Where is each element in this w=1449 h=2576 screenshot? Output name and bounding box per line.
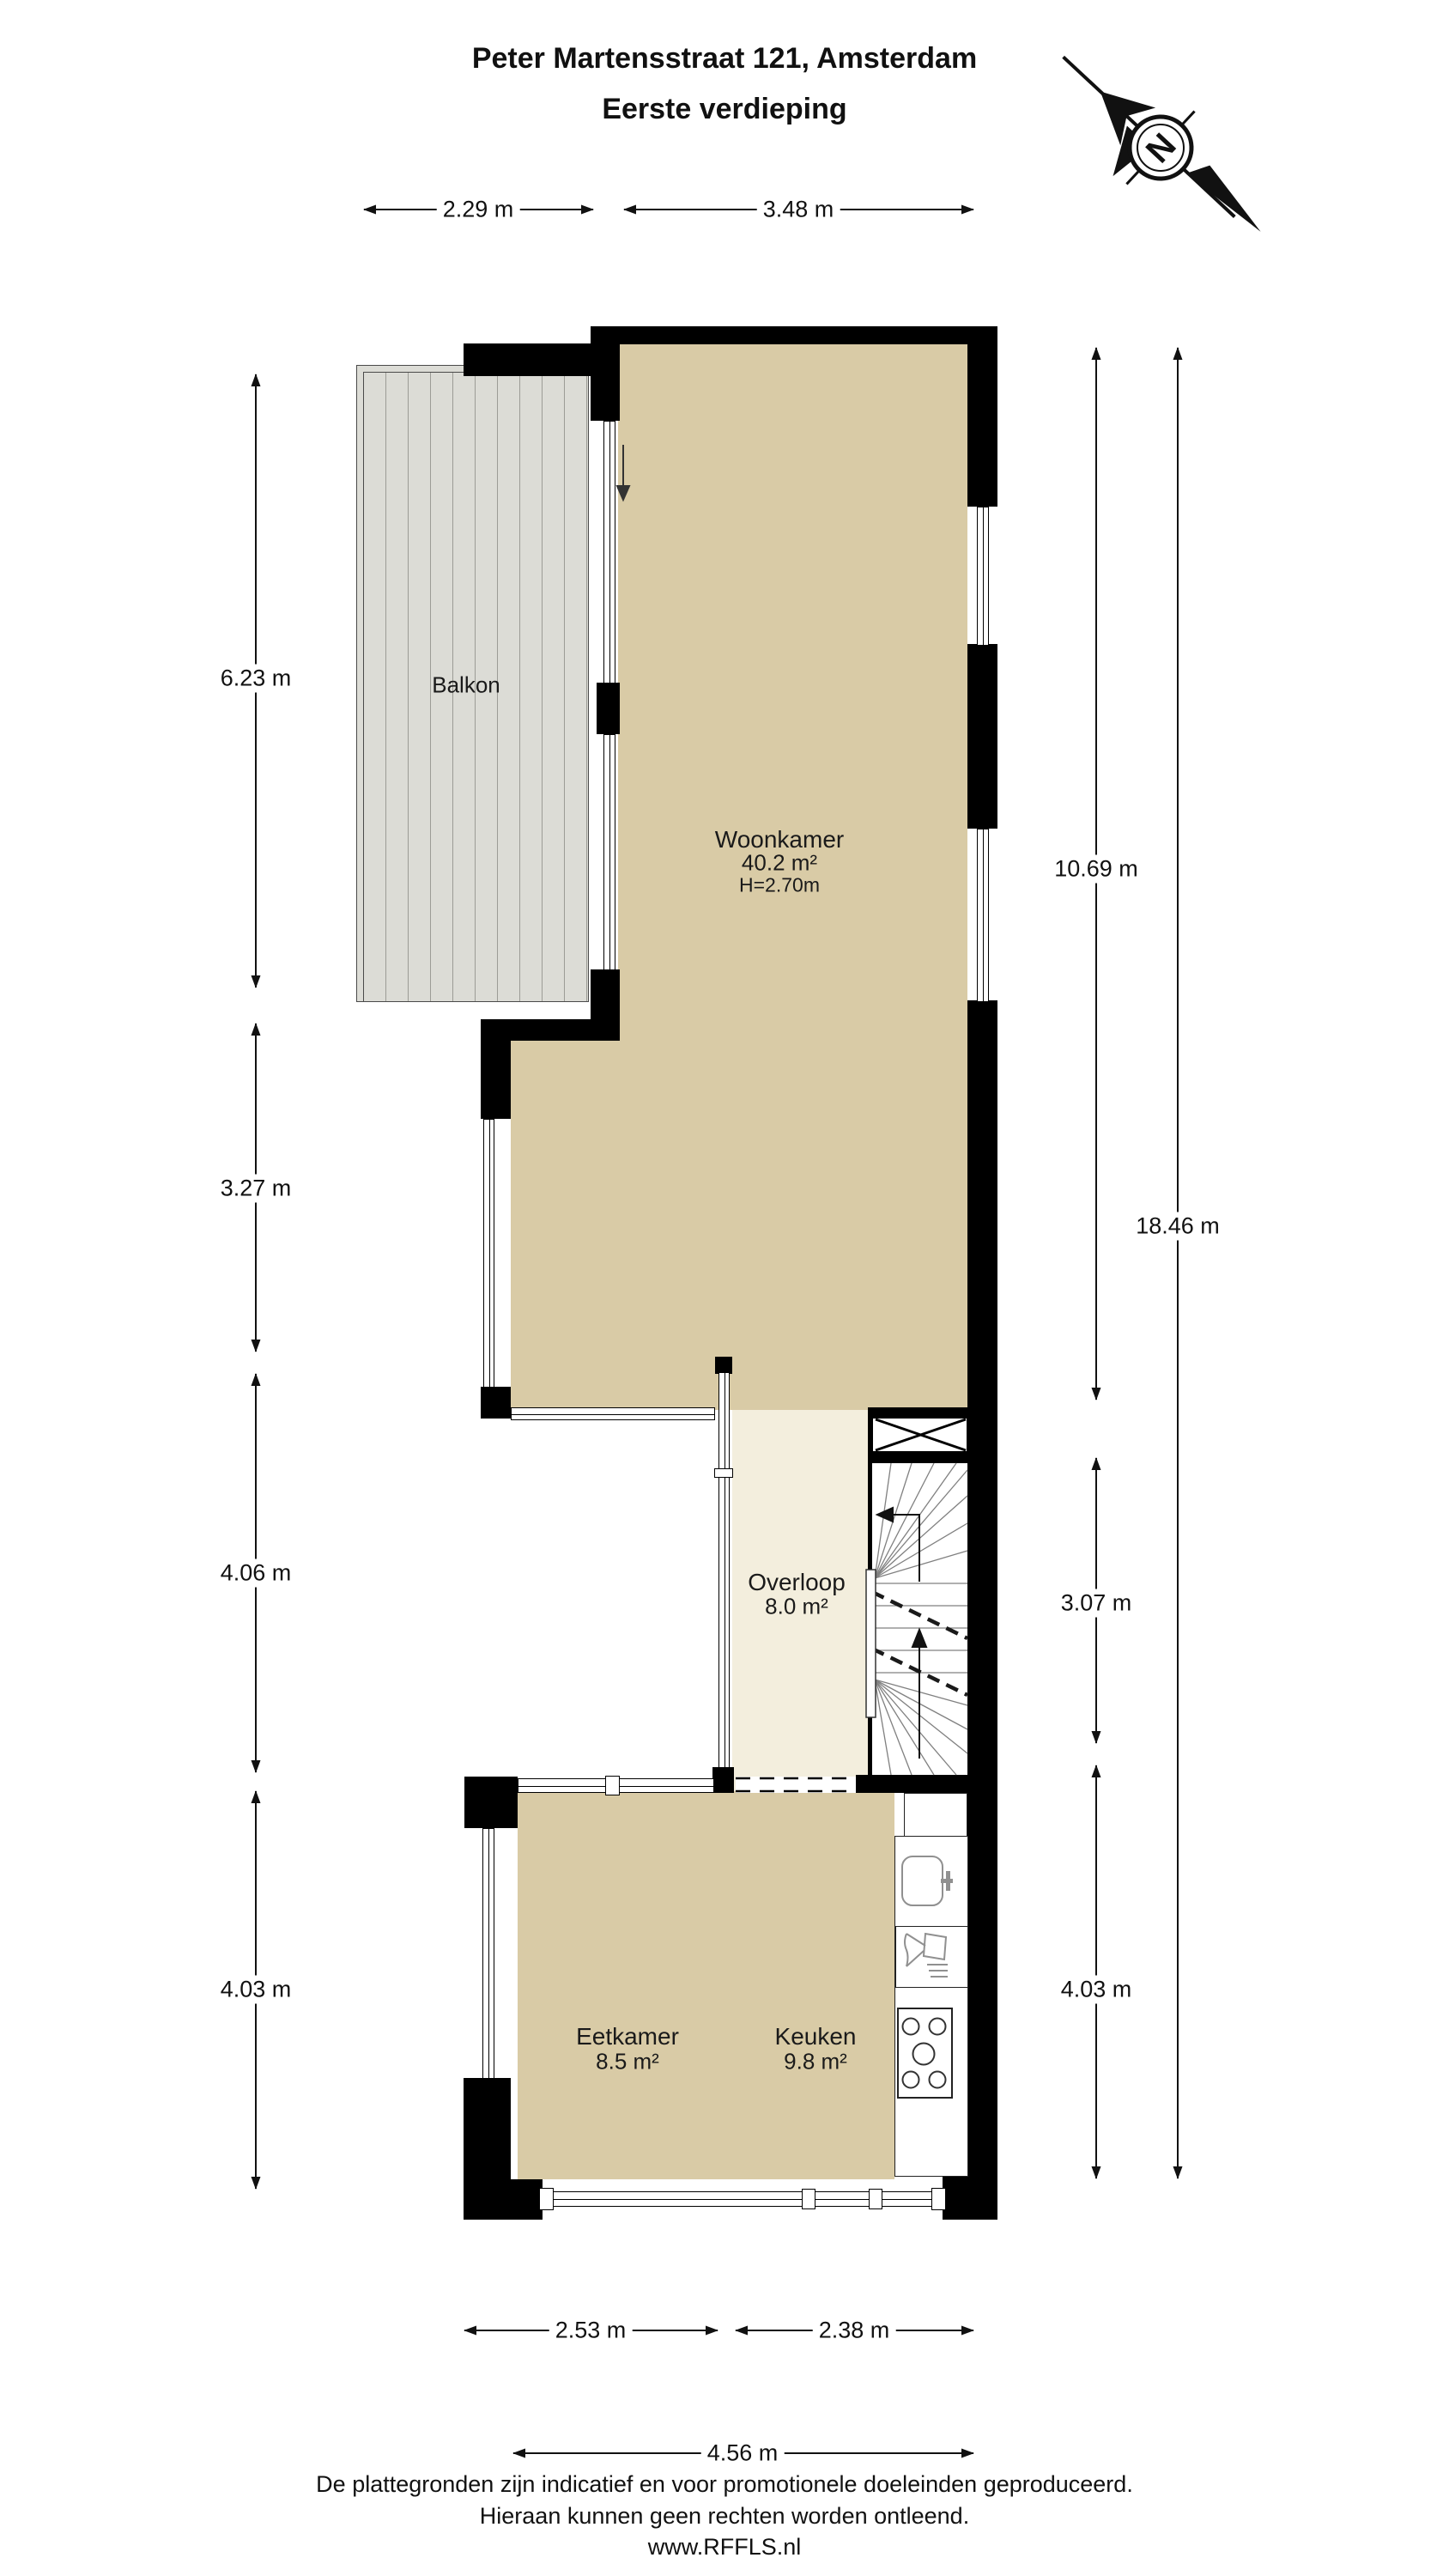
- dim-right-2: 3.07 m: [1055, 1589, 1138, 1618]
- page-title-line2: Eerste verdieping: [602, 93, 846, 126]
- dim-top-woonkamer: 3.48 m: [757, 196, 840, 224]
- wall-step-horizontal: [511, 1019, 620, 1041]
- window-band-woonkamer-bottom: [511, 1407, 715, 1420]
- room-ceiling-woonkamer: H=2.70m: [739, 874, 820, 897]
- room-area-keuken: 9.8 m²: [784, 2049, 847, 2075]
- window-right-1: [977, 507, 989, 646]
- window-cap-bottom-mid2: [869, 2189, 882, 2209]
- dim-top-balkon: 2.29 m: [437, 196, 520, 224]
- dim-bottom-total: 4.56 m: [701, 2439, 785, 2468]
- balcony-door-glass-1: [603, 421, 615, 684]
- footer-website: www.RFFLS.nl: [648, 2534, 802, 2561]
- footer-disclaimer-line1: De plattegronden zijn indicatief en voor…: [316, 2471, 1133, 2498]
- floor-woonkamer-upper: [618, 344, 967, 1041]
- wall-eetkamer-top-left: [464, 1777, 518, 1828]
- dim-bottom-2: 2.38 m: [813, 2317, 896, 2345]
- stair-break-lines: [872, 1592, 967, 1695]
- room-label-eetkamer: Eetkamer: [576, 2023, 679, 2050]
- room-label-balkon: Balkon: [432, 672, 500, 699]
- kitchen-sink-box: [894, 1836, 968, 1928]
- wall-balkon-door-mid: [597, 683, 620, 734]
- wall-right-pier: [967, 644, 997, 829]
- wall-balkon-door-top: [591, 326, 620, 421]
- floor-eetkamer-keuken: [518, 1791, 894, 2179]
- wall-corner-bottom-left-foot: [511, 2179, 543, 2220]
- wall-top-woonkamer: [591, 326, 997, 344]
- stair-treads: [872, 1463, 967, 1775]
- room-area-eetkamer: 8.5 m²: [596, 2049, 659, 2075]
- window-cap-bottom-mid1: [802, 2189, 815, 2209]
- wall-overloop-bottom-block: [712, 1767, 734, 1793]
- wall-corner-bottom-right: [943, 2171, 997, 2220]
- compass-north-icon: N: [1027, 21, 1289, 276]
- room-label-keuken: Keuken: [775, 2023, 857, 2050]
- window-cap-bottom-left: [539, 2188, 554, 2210]
- room-area-woonkamer: 40.2 m²: [742, 850, 817, 877]
- wall-right-upper: [967, 326, 997, 507]
- window-overloop-left: [718, 1372, 730, 1769]
- dim-left-3: 4.06 m: [215, 1559, 298, 1588]
- floor-woonkamer-lower: [511, 1041, 967, 1410]
- window-cap-bottom-right: [931, 2188, 946, 2210]
- window-cap-overloop: [714, 1468, 733, 1478]
- room-label-overloop: Overloop: [748, 1569, 846, 1596]
- dim-right-1: 10.69 m: [1048, 855, 1144, 884]
- dim-left-1: 6.23 m: [215, 665, 298, 693]
- floorplan-page: N Peter Martensstraat 121, Amsterdam Eer…: [0, 0, 1449, 2576]
- room-area-overloop: 8.0 m²: [765, 1594, 828, 1620]
- window-right-2: [977, 829, 989, 1002]
- page-title-line1: Peter Martensstraat 121, Amsterdam: [472, 42, 977, 76]
- kitchen-counter-top-strip: [904, 1793, 967, 1837]
- wall-right-long: [967, 1000, 997, 2177]
- wall-left-block-1: [481, 1019, 511, 1119]
- kitchen-stove-box: [897, 2008, 953, 2099]
- wall-overloop-top-block: [715, 1357, 732, 1374]
- dim-right-3: 4.03 m: [1055, 1976, 1138, 2004]
- compass-n-letter: N: [1139, 126, 1184, 170]
- window-cap-eetkamer-top: [605, 1776, 620, 1795]
- window-left-woonkamer: [483, 1119, 494, 1388]
- stair-shaft: [856, 1407, 967, 1793]
- dim-right-total: 18.46 m: [1130, 1212, 1226, 1241]
- stair-direction-arrows: [877, 1508, 926, 1759]
- wall-corner-bottom-left: [464, 2078, 511, 2220]
- dim-left-4: 4.03 m: [215, 1976, 298, 2004]
- footer-disclaimer-line2: Hieraan kunnen geen rechten worden ontle…: [480, 2503, 969, 2530]
- wall-left-block-2: [481, 1387, 511, 1419]
- dim-bottom-1: 2.53 m: [549, 2317, 633, 2345]
- kitchen-dishwasher-box: [895, 1926, 968, 1988]
- window-left-eetkamer: [482, 1828, 494, 2097]
- balcony-door-glass-2: [603, 734, 615, 971]
- dim-left-2: 3.27 m: [215, 1175, 298, 1203]
